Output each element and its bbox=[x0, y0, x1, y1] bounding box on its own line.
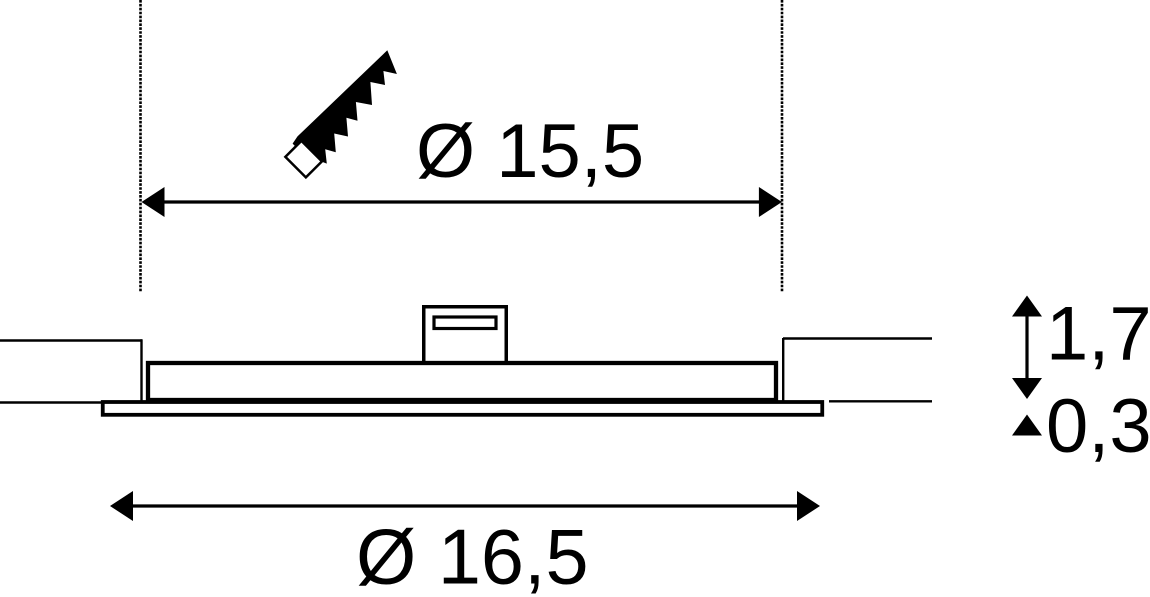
svg-text:0,3: 0,3 bbox=[1046, 384, 1150, 469]
svg-text:Ø 16,5: Ø 16,5 bbox=[356, 515, 589, 597]
svg-text:1,7: 1,7 bbox=[1046, 292, 1150, 377]
svg-text:Ø 15,5: Ø 15,5 bbox=[416, 109, 644, 194]
